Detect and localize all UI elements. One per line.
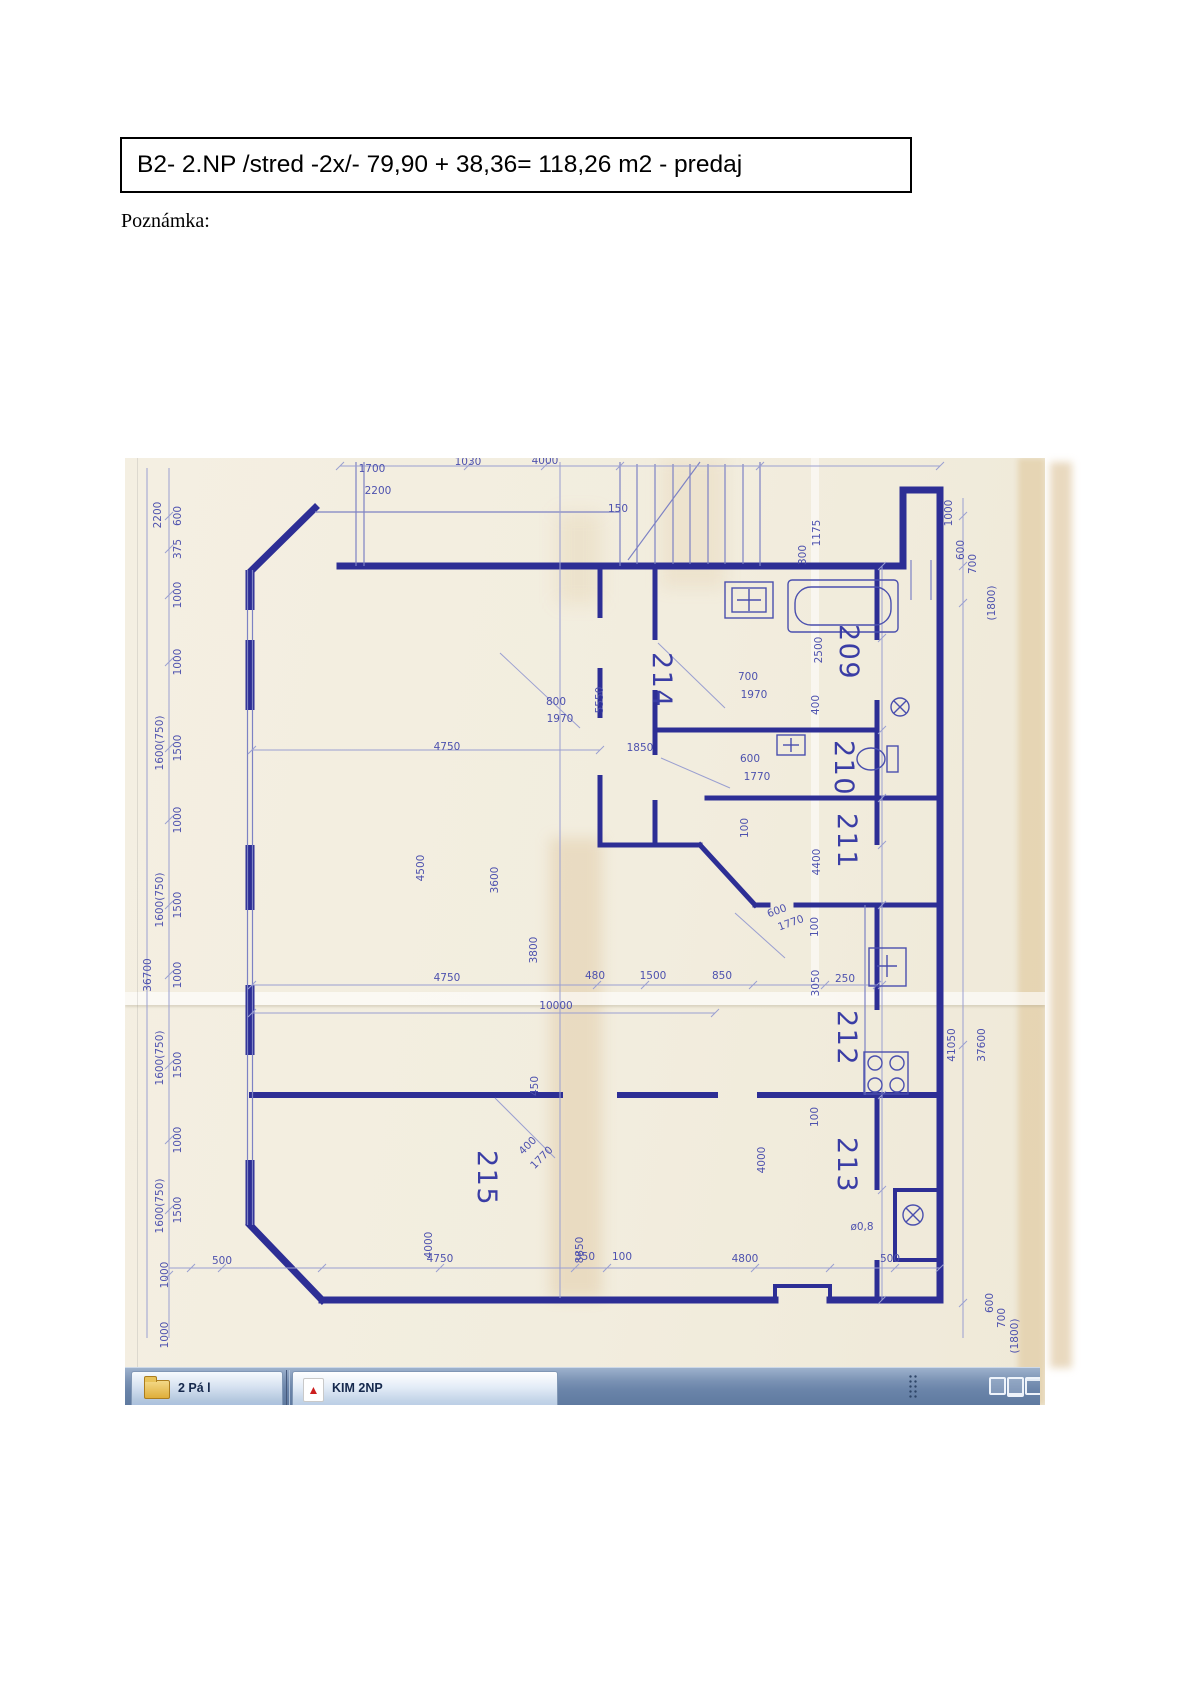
dimension-label: 100 xyxy=(809,917,821,937)
dimension-label: 2200 xyxy=(152,502,164,529)
dimension-label: 1500 xyxy=(172,1197,184,1224)
dimension-label: 600 xyxy=(172,506,184,526)
dimension-label: 600 xyxy=(955,540,967,560)
room-label-211: 211 xyxy=(831,813,862,869)
dimension-label: 1000 xyxy=(172,582,184,609)
taskbar-button-pdf[interactable]: ▲ KIM 2NP xyxy=(292,1371,558,1405)
dimension-line xyxy=(661,758,730,788)
dimension-label: 500 xyxy=(212,1255,232,1267)
wall-line xyxy=(598,568,603,618)
dimension-label: 350 xyxy=(575,1251,595,1263)
clipboard-icon[interactable] xyxy=(1025,1377,1040,1395)
pdf-icon: ▲ xyxy=(303,1378,324,1402)
dimension-label: 1000 xyxy=(172,1127,184,1154)
dimension-line xyxy=(735,913,785,958)
dimension-label: 150 xyxy=(608,503,628,515)
wall-line xyxy=(598,775,603,845)
dimension-label: 2200 xyxy=(365,485,392,497)
dimension-label: 100 xyxy=(739,818,751,838)
dimension-label: 1000 xyxy=(159,1262,171,1289)
wall-line xyxy=(875,1095,880,1190)
folder-icon xyxy=(144,1380,170,1399)
dimension-label: 4750 xyxy=(434,972,461,984)
dimension-label: 800 xyxy=(546,696,566,708)
dimension-label: 4000 xyxy=(756,1147,768,1174)
dimension-label: 3050 xyxy=(810,970,822,997)
fixture-shape xyxy=(857,748,885,770)
taskbar-button-folder[interactable]: 2 Pá l xyxy=(131,1371,283,1405)
dimension-label: 5550 xyxy=(594,687,606,714)
dimension-label: 4500 xyxy=(415,855,427,882)
dimension-label: 1000 xyxy=(172,649,184,676)
dimension-label: 1000 xyxy=(172,807,184,834)
dimension-label: 1970 xyxy=(741,689,768,701)
wall-line xyxy=(250,1225,322,1300)
dimension-label: 700 xyxy=(967,554,979,574)
wall-line xyxy=(246,1160,255,1225)
dimension-label: 1970 xyxy=(547,713,574,725)
dimension-label: 37600 xyxy=(976,1028,988,1061)
dimension-label: 600 xyxy=(740,753,760,765)
dimension-label: (1800) xyxy=(986,586,998,621)
dimension-label: 3600 xyxy=(489,867,501,894)
explorer-icon[interactable] xyxy=(1007,1377,1024,1397)
wall-line xyxy=(875,905,880,1010)
dimension-label: 500 xyxy=(880,1253,900,1265)
dimension-label: 4750 xyxy=(434,741,461,753)
dimension-label: 1600(750) xyxy=(154,716,166,771)
wall-line xyxy=(246,570,255,610)
dimension-label: 1500 xyxy=(172,892,184,919)
wall-line xyxy=(628,462,700,560)
note-label: Poznámka: xyxy=(121,210,210,233)
fixture-shape xyxy=(868,1056,882,1070)
dimension-label: 2500 xyxy=(813,637,825,664)
wall-line xyxy=(653,800,658,845)
wall-line xyxy=(246,640,255,710)
dimension-label: 250 xyxy=(835,973,855,985)
dimension-label: 1850 xyxy=(627,742,654,754)
header-title: B2- 2.NP /stred -2x/- 79,90 + 38,36= 118… xyxy=(137,151,742,179)
dimension-label: 700 xyxy=(996,1308,1008,1328)
room-label-214: 214 xyxy=(646,652,677,708)
document-icon[interactable] xyxy=(989,1377,1006,1395)
fixture-shape xyxy=(887,746,898,772)
dimension-label: 1000 xyxy=(159,1322,171,1349)
dimension-label: 1600(750) xyxy=(154,1179,166,1234)
wall-line xyxy=(700,845,755,905)
taskbar-separator xyxy=(286,1370,290,1405)
room-label-210: 210 xyxy=(828,740,859,796)
wall-line xyxy=(252,508,315,570)
dimension-label: 1500 xyxy=(172,735,184,762)
wall-line xyxy=(246,845,255,910)
dimension-label: 4750 xyxy=(427,1253,454,1265)
room-label-209: 209 xyxy=(833,624,864,680)
dimension-label: 450 xyxy=(529,1076,541,1096)
dimension-label: 1030 xyxy=(455,458,482,468)
document-page: { "header": { "title": "B2- 2.NP /stred … xyxy=(0,0,1190,1684)
dimension-label: 375 xyxy=(172,539,184,559)
wall-line xyxy=(875,700,880,845)
dimension-label: 41050 xyxy=(946,1028,958,1061)
dimension-label: ø0,8 xyxy=(850,1221,873,1233)
taskbar: 2 Pá l ▲ KIM 2NP xyxy=(125,1367,1040,1405)
room-label-215: 215 xyxy=(471,1150,502,1206)
dimension-label: 480 xyxy=(585,970,605,982)
fixture-shape xyxy=(890,1056,904,1070)
taskbar-grip-handle[interactable] xyxy=(908,1374,918,1400)
room-label-213: 213 xyxy=(831,1137,862,1193)
dimension-label: 400 xyxy=(517,1135,540,1158)
dimension-label: 1600(750) xyxy=(154,1031,166,1086)
room-label-212: 212 xyxy=(831,1010,862,1066)
wall-line xyxy=(246,985,255,1055)
dimension-label: 600 xyxy=(984,1293,996,1313)
dimension-label: 1500 xyxy=(172,1052,184,1079)
wall-line xyxy=(653,568,658,640)
wall-line xyxy=(875,566,880,640)
blueprint-scan: 20921021121221321421522001600(750)1600(7… xyxy=(125,458,1045,1405)
blueprint-floorplan-svg: 20921021121221321421522001600(750)1600(7… xyxy=(125,458,1045,1368)
dimension-label: 1600(750) xyxy=(154,873,166,928)
taskbar-button-label: 2 Pá l xyxy=(178,1378,211,1395)
dimension-label: 4800 xyxy=(732,1253,759,1265)
dimension-label: 36700 xyxy=(142,958,154,991)
dimension-label: 300 xyxy=(797,545,809,565)
header-title-box: B2- 2.NP /stred -2x/- 79,90 + 38,36= 118… xyxy=(120,137,912,193)
dimension-label: 1175 xyxy=(811,520,823,547)
taskbar-button-label: KIM 2NP xyxy=(332,1378,383,1395)
dimension-label: 4400 xyxy=(811,849,823,876)
dimension-label: 1000 xyxy=(172,962,184,989)
dimension-label: 100 xyxy=(612,1251,632,1263)
fixture-shape xyxy=(890,1078,904,1092)
dimension-label: 850 xyxy=(712,970,732,982)
dimension-label: 700 xyxy=(738,671,758,683)
dimension-label: 100 xyxy=(809,1107,821,1127)
dimension-label: (1800) xyxy=(1009,1319,1021,1354)
wall-line xyxy=(875,1260,880,1300)
dimension-label: 3800 xyxy=(528,937,540,964)
scan-artifact-stripe xyxy=(1050,462,1072,1368)
dimension-label: 4000 xyxy=(532,458,559,467)
dimension-label: 1500 xyxy=(640,970,667,982)
dimension-label: 1000 xyxy=(943,500,955,527)
fixture-shape xyxy=(868,1078,882,1092)
dimension-label: 10000 xyxy=(539,1000,572,1012)
dimension-label: 400 xyxy=(810,695,822,715)
dimension-label: 1700 xyxy=(359,463,386,475)
dimension-label: 1770 xyxy=(744,771,771,783)
